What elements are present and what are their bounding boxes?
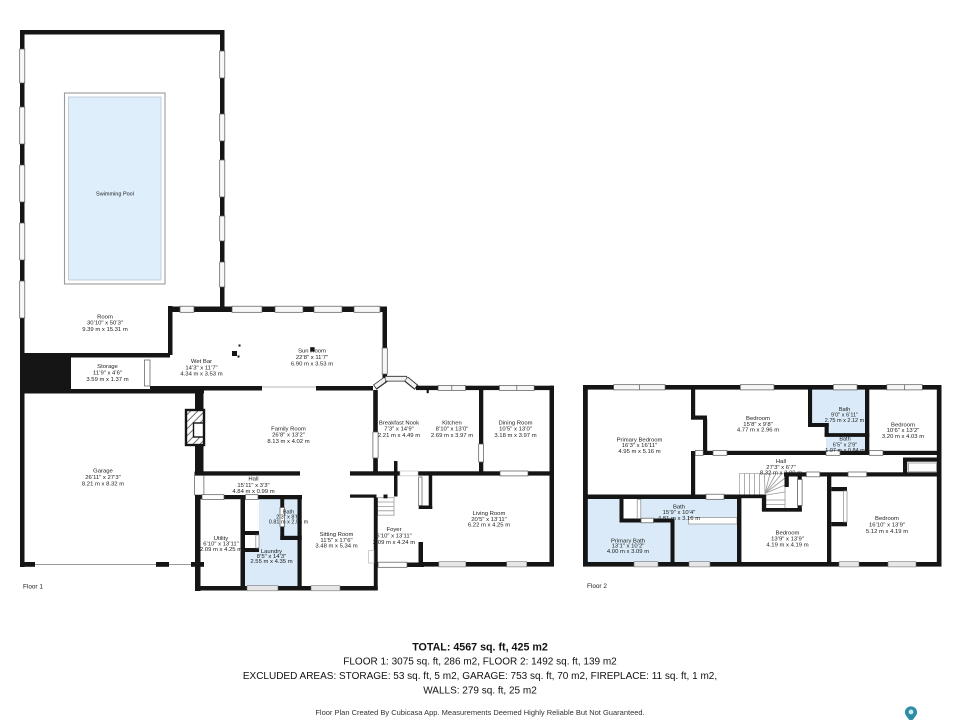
svg-text:9.39 m x 15.31 m: 9.39 m x 15.31 m (82, 327, 128, 333)
svg-text:15’11" x 3’3": 15’11" x 3’3" (237, 483, 269, 489)
svg-text:3.59 m x 1.37 m: 3.59 m x 1.37 m (86, 377, 128, 383)
svg-text:4.00 m x 3.09 m: 4.00 m x 3.09 m (607, 549, 649, 555)
svg-text:2.09 m x 4.24 m: 2.09 m x 4.24 m (373, 540, 415, 546)
svg-text:8.13 m x 4.02 m: 8.13 m x 4.02 m (267, 439, 309, 445)
svg-text:Breakfast Nook: Breakfast Nook (379, 421, 419, 427)
svg-text:2.09 m x 4.25 m: 2.09 m x 4.25 m (200, 547, 242, 553)
svg-text:26’8" x 13’2": 26’8" x 13’2" (272, 433, 305, 439)
svg-text:10’5" x 13’0": 10’5" x 13’0" (499, 427, 532, 433)
svg-text:26’11" x 27’3": 26’11" x 27’3" (85, 475, 121, 481)
svg-text:3.20 m x 4.03 m: 3.20 m x 4.03 m (882, 434, 924, 440)
svg-text:Kitchen: Kitchen (442, 421, 462, 427)
svg-text:Hall: Hall (248, 477, 258, 483)
svg-text:2.21 m x 4.49 m: 2.21 m x 4.49 m (378, 433, 420, 439)
svg-text:6.90 m x 3.53 m: 6.90 m x 3.53 m (291, 362, 333, 368)
svg-text:4.77 m x 2.96 m: 4.77 m x 2.96 m (737, 428, 779, 434)
svg-text:Wet Bar: Wet Bar (191, 359, 212, 365)
svg-text:16’10" x 13’9": 16’10" x 13’9" (869, 523, 905, 529)
svg-text:22’8" x 11’7": 22’8" x 11’7" (296, 355, 328, 361)
svg-text:13’9" x 13’9": 13’9" x 13’9" (771, 537, 804, 543)
svg-text:4.19 m x 4.19 m: 4.19 m x 4.19 m (766, 543, 808, 549)
svg-text:3.18 m x 3.97 m: 3.18 m x 3.97 m (494, 433, 536, 439)
svg-text:Room: Room (97, 314, 113, 320)
svg-text:4.34 m x 3.53 m: 4.34 m x 3.53 m (180, 372, 222, 378)
svg-text:4.81 m x 3.16 m: 4.81 m x 3.16 m (658, 516, 700, 522)
svg-text:4.95 m x 5.16 m: 4.95 m x 5.16 m (618, 449, 660, 455)
svg-text:Garage: Garage (93, 469, 113, 475)
svg-text:1.97 m x 0.84 m: 1.97 m x 0.84 m (825, 448, 865, 454)
svg-text:Storage: Storage (97, 364, 118, 370)
svg-text:2.69 m x 3.97 m: 2.69 m x 3.97 m (431, 433, 473, 439)
svg-text:Floor 1: Floor 1 (23, 583, 43, 590)
svg-text:11’9" x 4’6": 11’9" x 4’6" (93, 371, 122, 377)
svg-text:6’10" x 13’11": 6’10" x 13’11" (376, 534, 412, 540)
svg-text:7’3" x 14’9": 7’3" x 14’9" (384, 427, 413, 433)
svg-text:Bedroom: Bedroom (776, 531, 800, 537)
svg-text:8.32 m x 2.00 m: 8.32 m x 2.00 m (760, 471, 802, 477)
svg-text:Dining Room: Dining Room (498, 421, 532, 427)
svg-text:8’10" x 13’0": 8’10" x 13’0" (436, 427, 469, 433)
svg-text:3.48 m x 5.34 m: 3.48 m x 5.34 m (315, 544, 357, 550)
svg-text:Bedroom: Bedroom (875, 516, 899, 522)
svg-text:Floor 2: Floor 2 (587, 583, 607, 590)
svg-text:Foyer: Foyer (386, 527, 401, 533)
svg-text:Floor Plan Created By Cubicasa: Floor Plan Created By Cubicasa App. Meas… (315, 708, 644, 717)
svg-text:WALLS: 279 sq. ft, 25 m2: WALLS: 279 sq. ft, 25 m2 (423, 685, 537, 696)
svg-text:2.75 m x 2.12 m: 2.75 m x 2.12 m (825, 418, 865, 424)
svg-text:8.21 m x 8.32 m: 8.21 m x 8.32 m (82, 482, 124, 488)
svg-text:Family Room: Family Room (271, 426, 306, 432)
svg-text:0.81 m x 2.56 m: 0.81 m x 2.56 m (269, 520, 309, 526)
svg-text:5.12 m x 4.19 m: 5.12 m x 4.19 m (866, 529, 908, 535)
svg-text:FLOOR 1: 3075 sq. ft, 286 m2,: FLOOR 1: 3075 sq. ft, 286 m2, FLOOR 2: 1… (343, 657, 617, 668)
svg-text:TOTAL: 4567 sq. ft, 425 m2: TOTAL: 4567 sq. ft, 425 m2 (412, 641, 548, 653)
svg-text:Swimming Pool: Swimming Pool (96, 191, 134, 197)
svg-text:4.84 m x 0.99 m: 4.84 m x 0.99 m (232, 489, 274, 495)
svg-text:30’10" x 50’3": 30’10" x 50’3" (87, 321, 123, 327)
svg-text:6.22 m x 4.25 m: 6.22 m x 4.25 m (468, 523, 510, 529)
svg-text:EXCLUDED AREAS: STORAGE: 53 sq: EXCLUDED AREAS: STORAGE: 53 sq. ft, 5 m2… (243, 671, 717, 682)
svg-text:2.55 m x 4.35 m: 2.55 m x 4.35 m (250, 559, 292, 565)
